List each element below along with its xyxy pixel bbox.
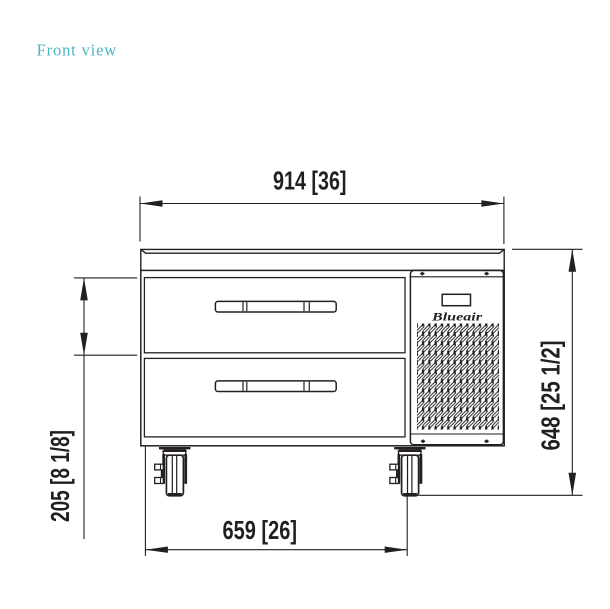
- svg-text:914 [36]: 914 [36]: [273, 166, 347, 196]
- svg-text:Blueair: Blueair: [431, 312, 483, 324]
- svg-text:205 [8 1/8]: 205 [8 1/8]: [45, 430, 75, 522]
- svg-text:659 [26]: 659 [26]: [223, 515, 298, 545]
- svg-text:648 [25 1/2]: 648 [25 1/2]: [536, 341, 566, 451]
- svg-text:Front view: Front view: [37, 41, 117, 60]
